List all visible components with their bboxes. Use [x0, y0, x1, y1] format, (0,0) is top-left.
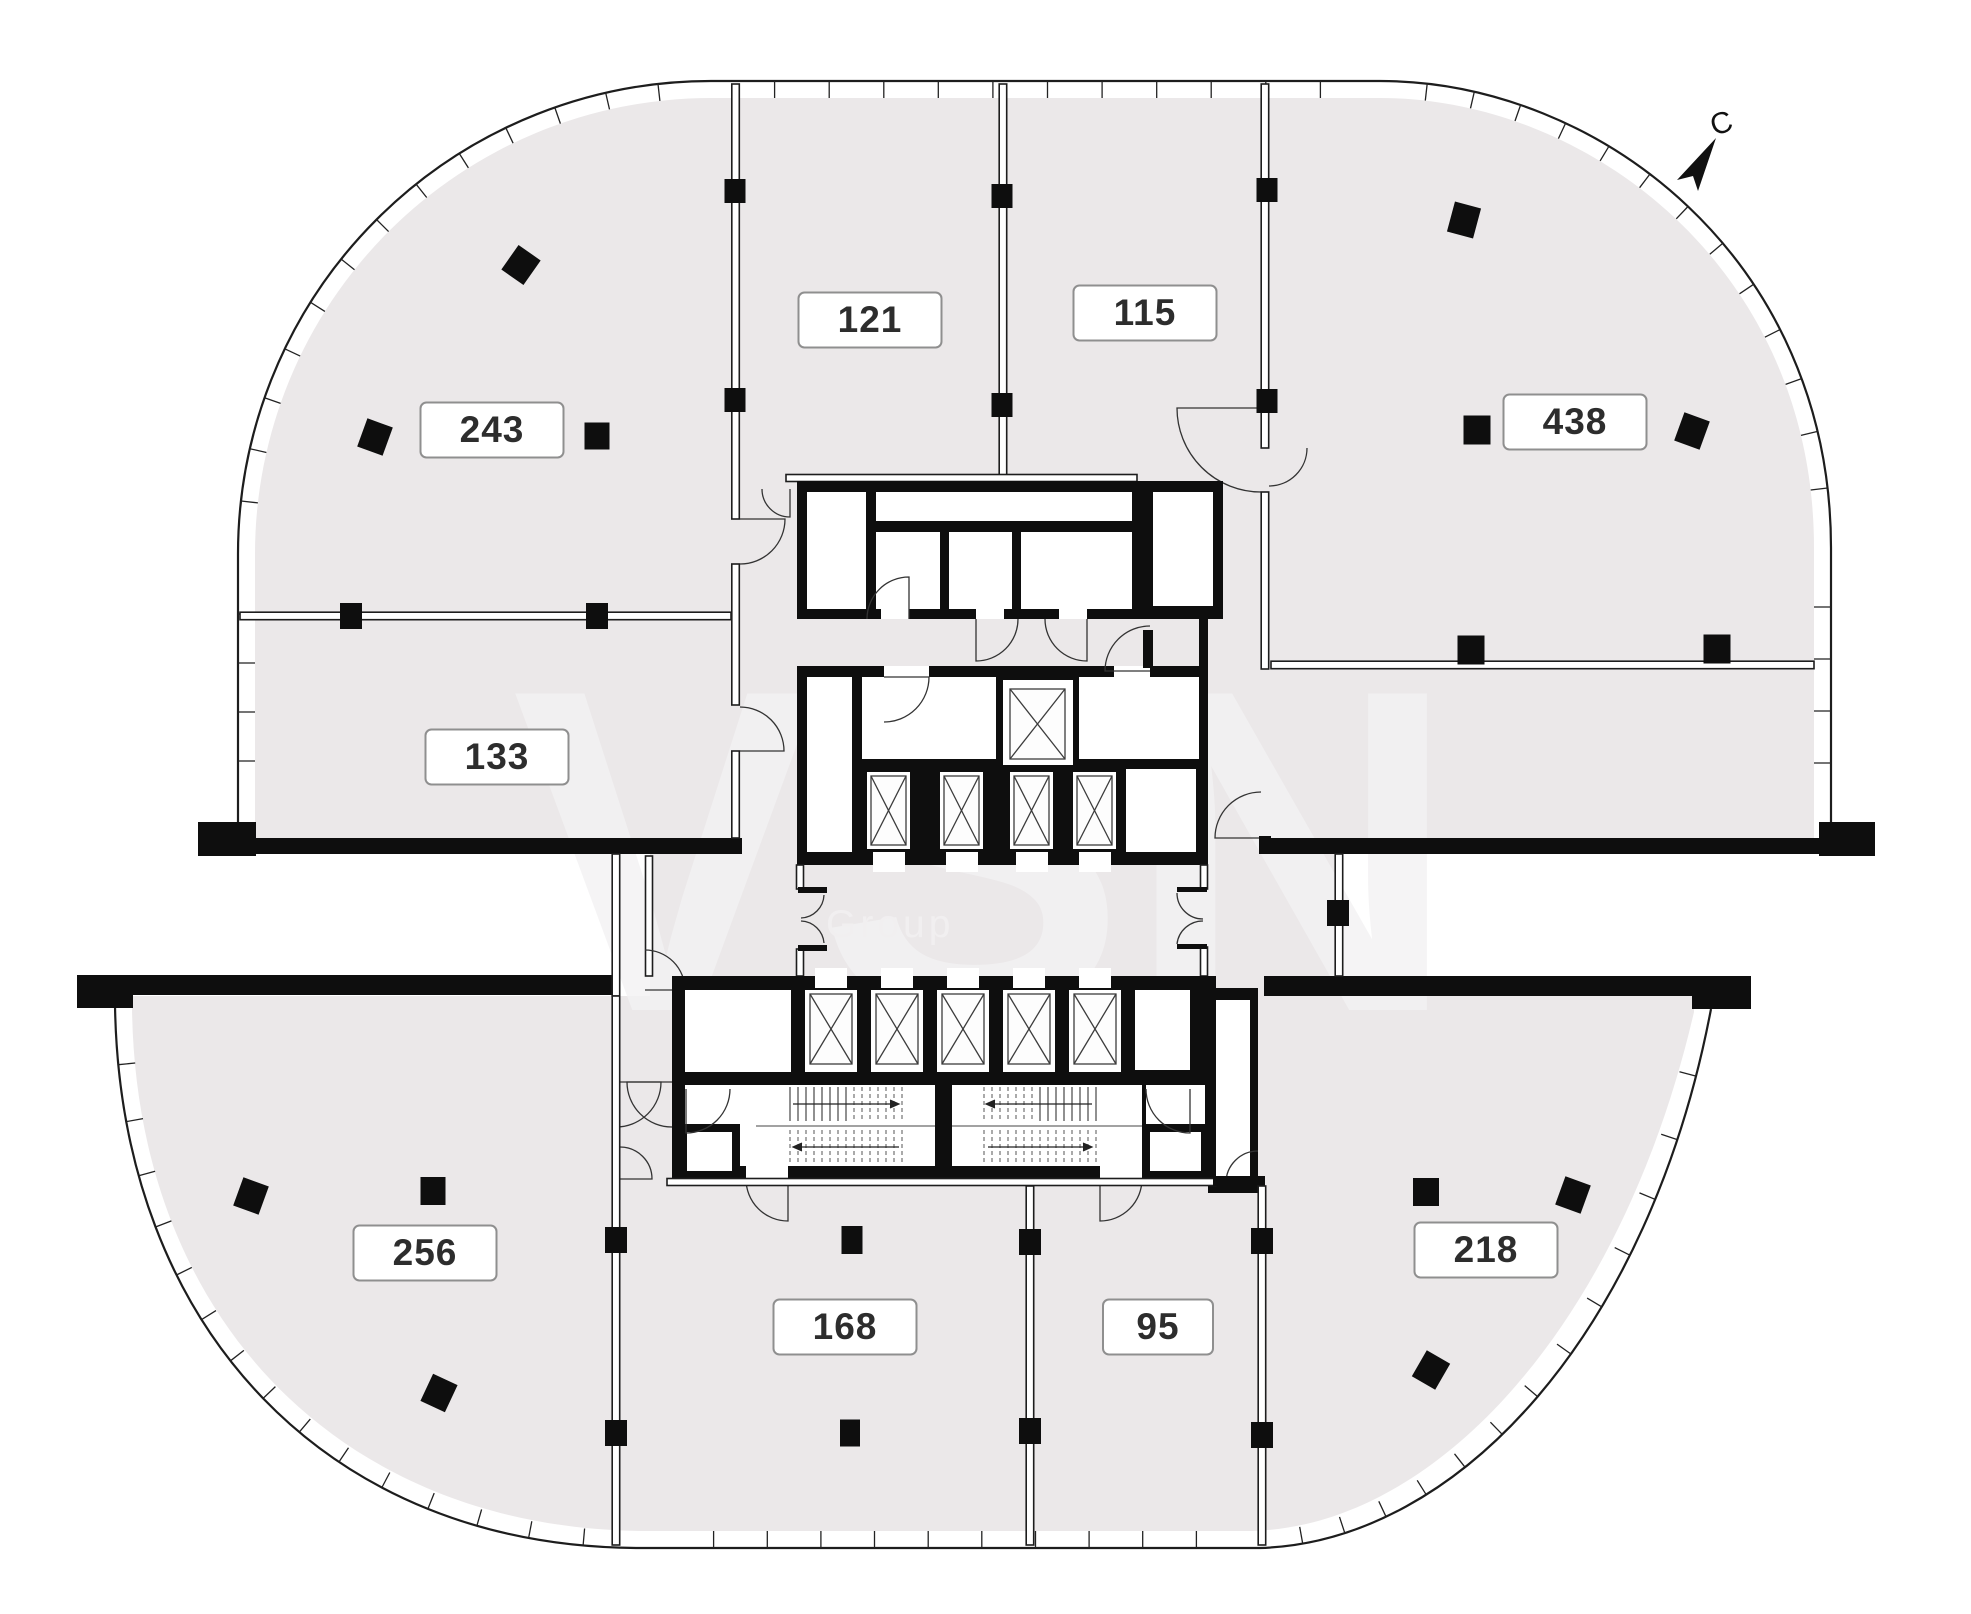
svg-text:168: 168 [813, 1306, 878, 1347]
svg-text:121: 121 [838, 299, 903, 340]
svg-text:95: 95 [1136, 1306, 1179, 1347]
svg-text:218: 218 [1454, 1229, 1519, 1270]
svg-text:438: 438 [1543, 401, 1608, 442]
svg-text:256: 256 [393, 1232, 458, 1273]
svg-text:133: 133 [465, 736, 530, 777]
svg-text:115: 115 [1114, 292, 1177, 333]
svg-text:243: 243 [460, 409, 525, 450]
svg-text:Group: Group [826, 903, 954, 946]
